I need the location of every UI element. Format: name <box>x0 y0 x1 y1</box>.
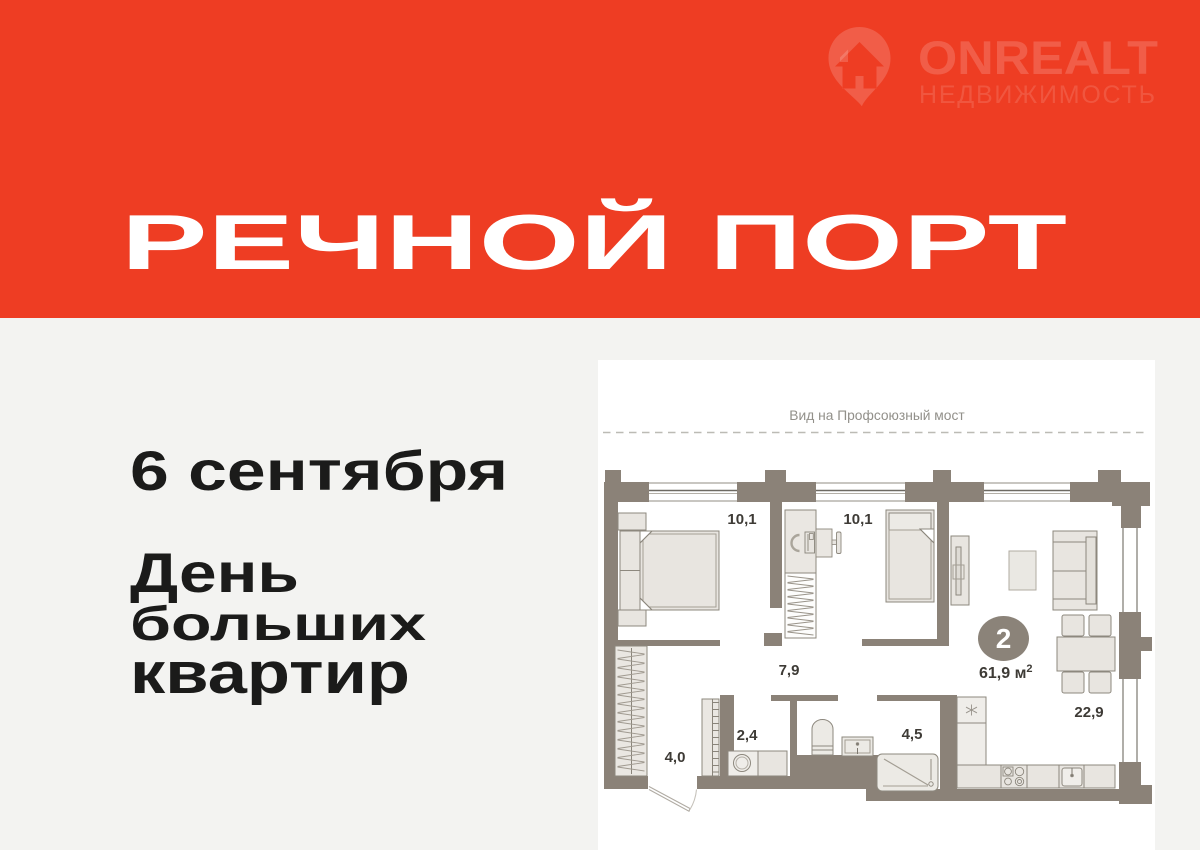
svg-text:22,9: 22,9 <box>1074 704 1103 721</box>
svg-text:61,9 м2: 61,9 м2 <box>979 663 1033 682</box>
svg-text:РЕЧНОЙ ПОРТ: РЕЧНОЙ ПОРТ <box>121 198 1067 286</box>
svg-text:6 сентября: 6 сентября <box>130 439 508 502</box>
svg-text:10,1: 10,1 <box>843 511 872 528</box>
svg-text:ONREALT: ONREALT <box>918 31 1158 84</box>
svg-text:2,4: 2,4 <box>737 727 759 744</box>
svg-text:2: 2 <box>996 623 1012 654</box>
svg-text:НЕДВИЖИМОСТЬ: НЕДВИЖИМОСТЬ <box>919 81 1155 109</box>
svg-text:7,9: 7,9 <box>779 662 800 679</box>
svg-text:4,0: 4,0 <box>665 749 686 766</box>
svg-text:4,5: 4,5 <box>902 726 923 743</box>
svg-text:квартир: квартир <box>130 641 410 706</box>
svg-text:Вид на Профсоюзный мост: Вид на Профсоюзный мост <box>789 408 965 423</box>
svg-text:10,1: 10,1 <box>727 511 756 528</box>
svg-text:День: День <box>130 541 299 604</box>
